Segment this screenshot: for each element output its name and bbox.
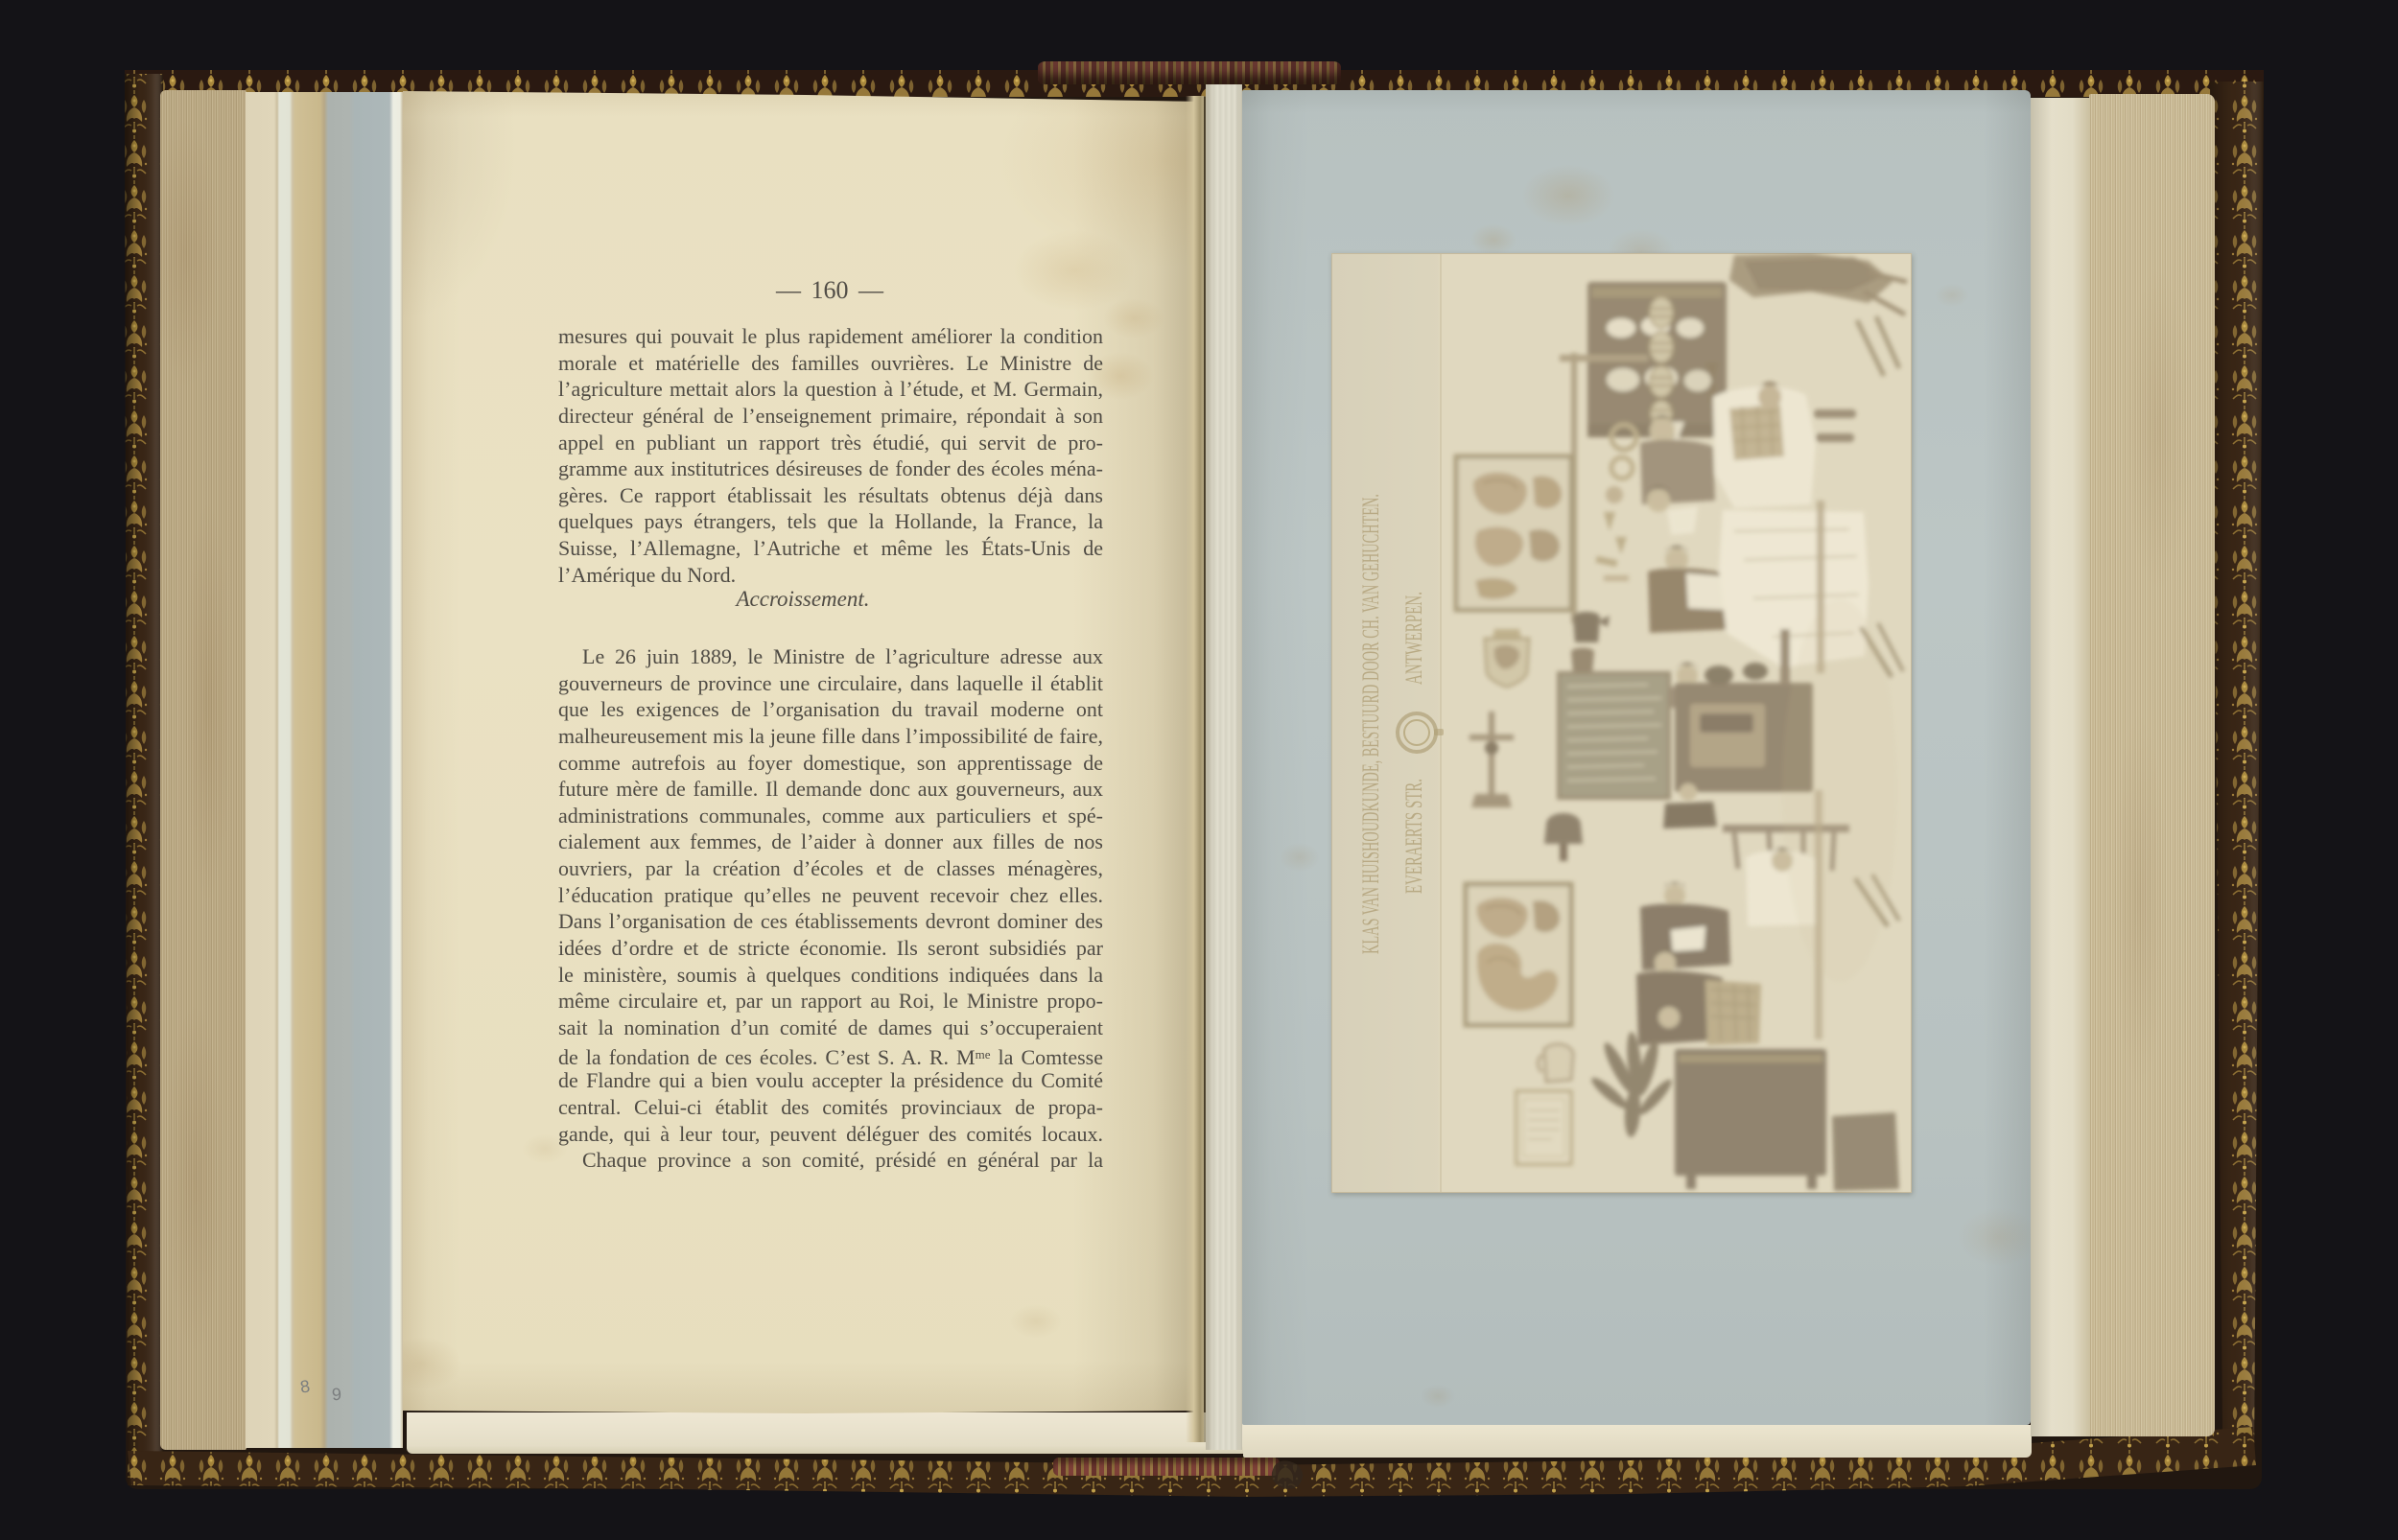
svg-text:EVERAERTS STR.: EVERAERTS STR. <box>1401 779 1427 894</box>
svg-text:ANTWERPEN.: ANTWERPEN. <box>1401 592 1427 685</box>
svg-text:KLAS VAN HUISHOUDKUNDE, BESTUU: KLAS VAN HUISHOUDKUNDE, BESTUURD DOOR CH… <box>1358 494 1384 954</box>
